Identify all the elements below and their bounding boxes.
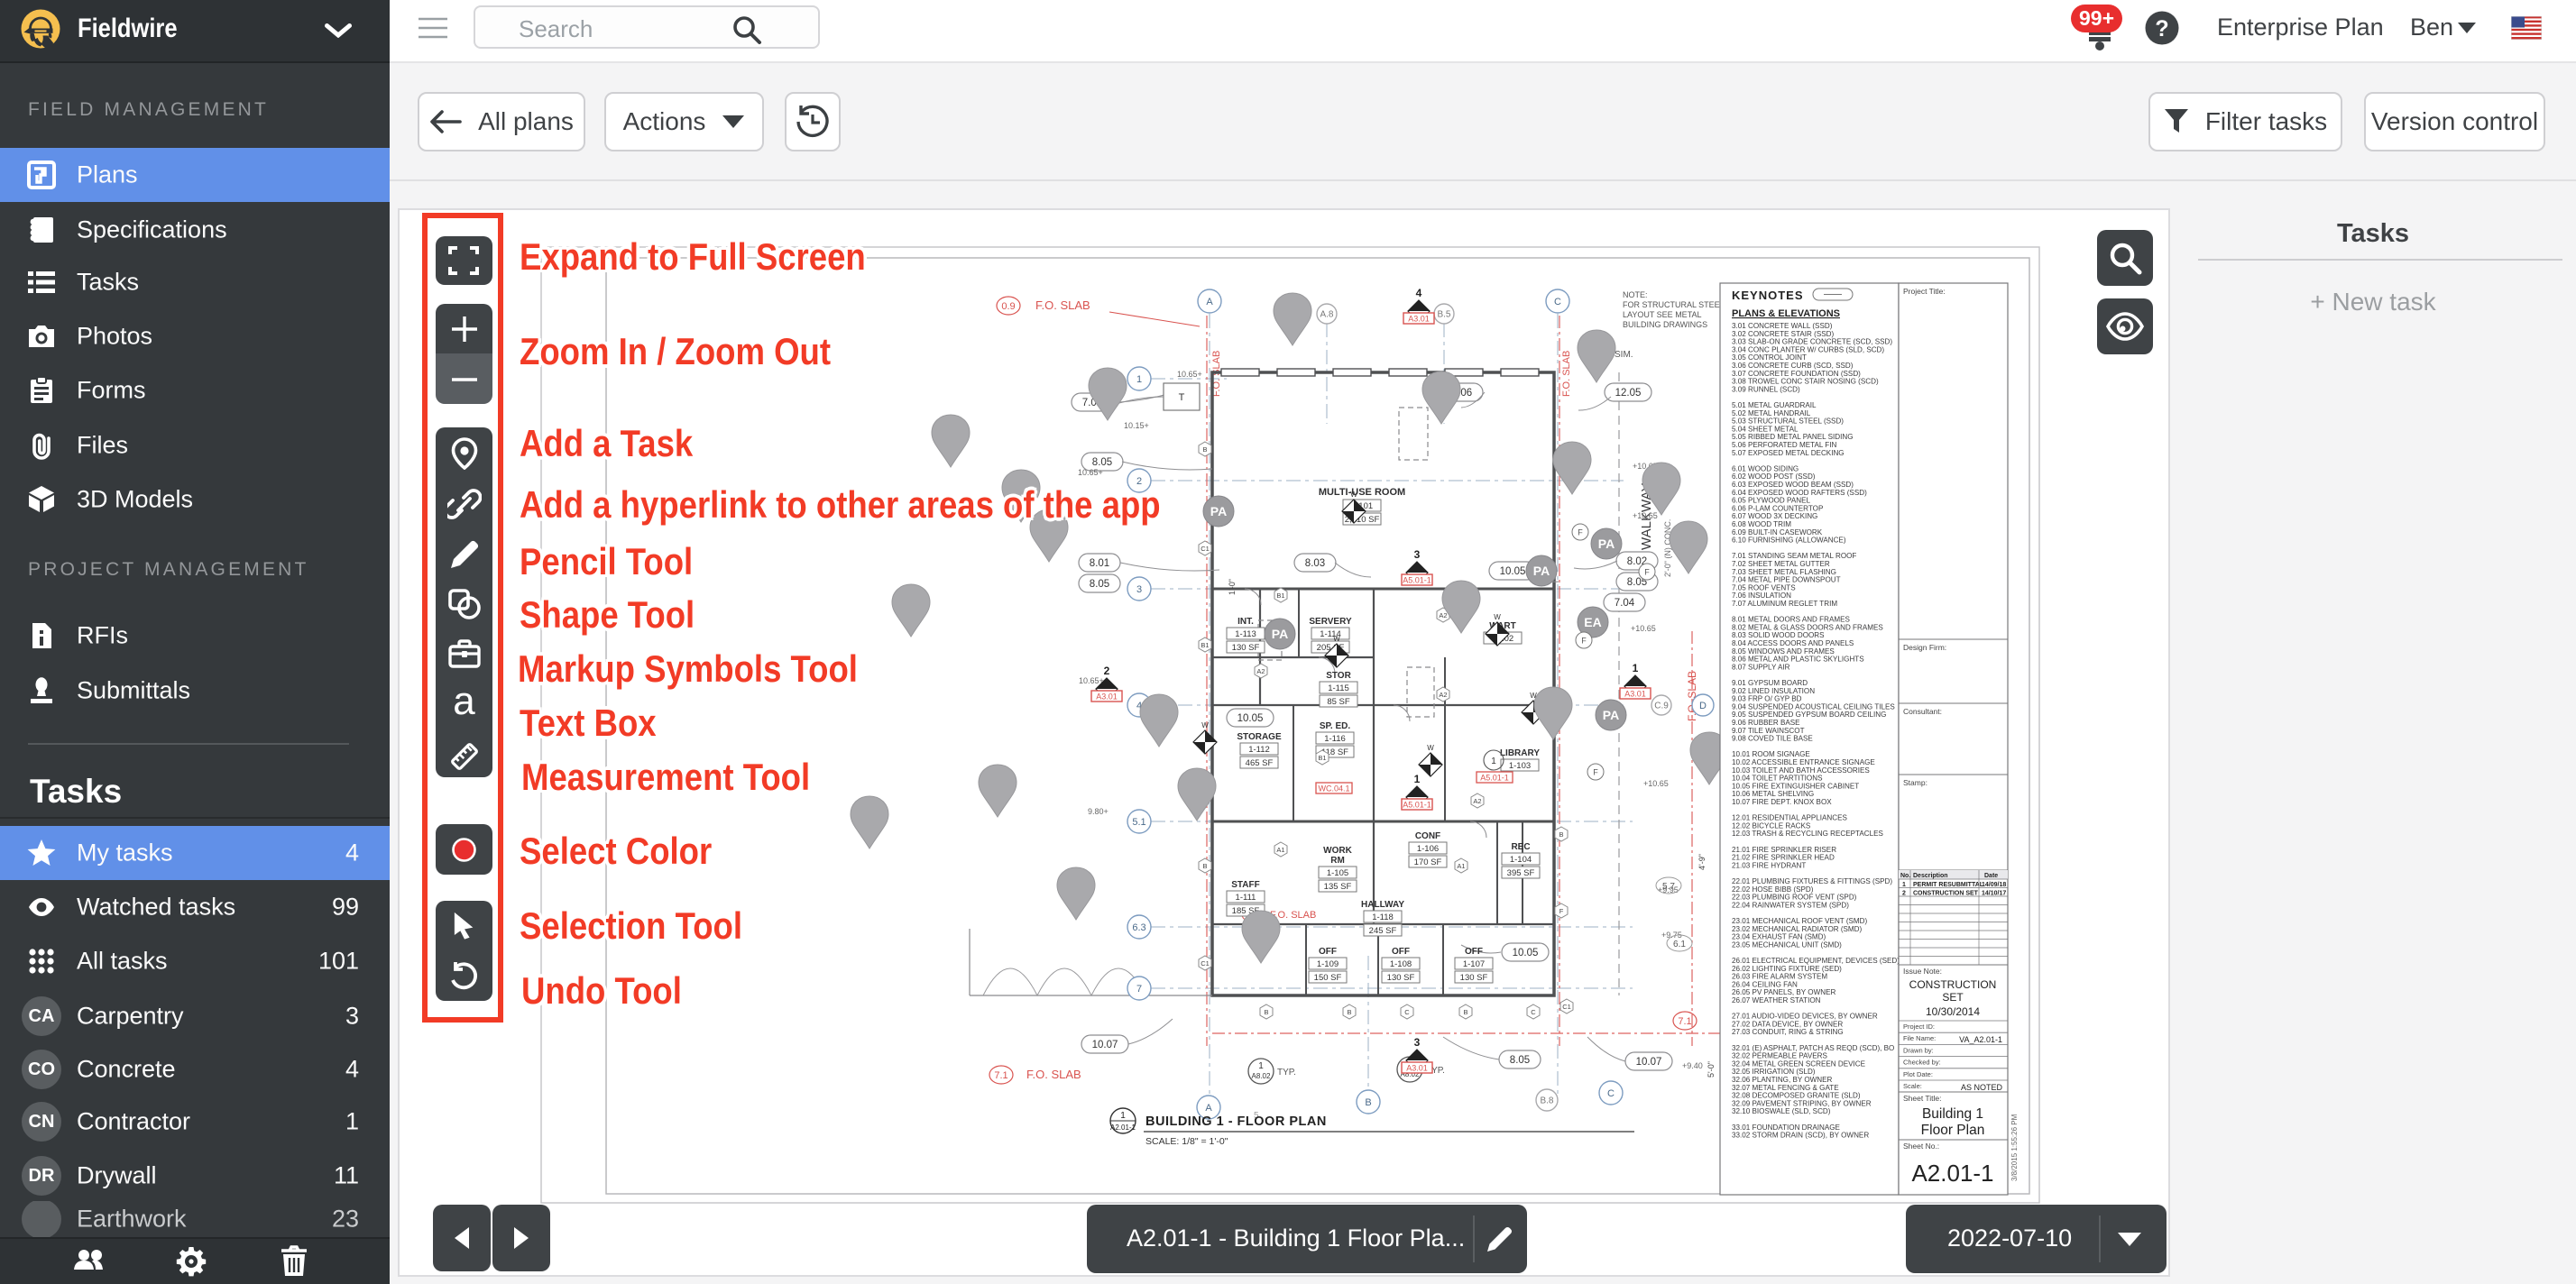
svg-text:RM: RM: [1330, 856, 1345, 866]
svg-text:6.02 WOOD POST (SSD): 6.02 WOOD POST (SSD): [1732, 472, 1816, 481]
svg-text:26.04 CEILING FAN: 26.04 CEILING FAN: [1732, 980, 1798, 988]
svg-text:5'-0": 5'-0": [1707, 1061, 1716, 1078]
svg-text:8.03: 8.03: [1305, 558, 1325, 569]
svg-text:1: 1: [1258, 1061, 1264, 1071]
svg-text:10.02 ACCESSIBLE ENTRANCE SIGN: 10.02 ACCESSIBLE ENTRANCE SIGNAGE: [1732, 758, 1875, 766]
svg-text:6.08 WOOD TRIM: 6.08 WOOD TRIM: [1732, 520, 1791, 528]
svg-text:14/09/18: 14/09/18: [1982, 882, 2006, 888]
svg-text:PERMIT RESUBMITTAL: PERMIT RESUBMITTAL: [1913, 882, 1984, 888]
svg-text:Project ID:: Project ID:: [1903, 1023, 1935, 1031]
svg-text:Building 1: Building 1: [1922, 1106, 1983, 1122]
svg-text:10.07 FIRE DEPT. KNOX BOX: 10.07 FIRE DEPT. KNOX BOX: [1732, 798, 1832, 806]
svg-text:9.02 LINED INSULATION: 9.02 LINED INSULATION: [1732, 687, 1815, 695]
svg-text:A1: A1: [1457, 862, 1465, 870]
svg-text:2: 2: [1902, 891, 1906, 897]
svg-text:33.02 STORM DRAIN (SCD), BY OW: 33.02 STORM DRAIN (SCD), BY OWNER: [1732, 1132, 1869, 1140]
svg-text:23.02 MECHANICAL RADIATOR (SMD: 23.02 MECHANICAL RADIATOR (SMD): [1732, 925, 1863, 933]
svg-text:A3.01: A3.01: [1096, 692, 1118, 702]
svg-text:1-115: 1-115: [1328, 683, 1349, 693]
svg-text:5.06 PERFORATED METAL FIN: 5.06 PERFORATED METAL FIN: [1732, 441, 1836, 449]
svg-text:9.06 RUBBER BASE: 9.06 RUBBER BASE: [1732, 719, 1800, 727]
svg-text:7.1: 7.1: [1678, 1016, 1691, 1027]
svg-text:10.03 TOILET AND BATH ACCESSOR: 10.03 TOILET AND BATH ACCESSORIES: [1732, 766, 1870, 775]
svg-text:5.07 EXPOSED METAL DECKING: 5.07 EXPOSED METAL DECKING: [1732, 449, 1845, 457]
svg-text:3.01 CONCRETE WALL (SSD): 3.01 CONCRETE WALL (SSD): [1732, 322, 1833, 330]
svg-text:1'-0": 1'-0": [1228, 579, 1237, 595]
svg-text:BUILDING DRAWINGS: BUILDING DRAWINGS: [1623, 320, 1707, 329]
svg-text:10.04 TOILET PARTITIONS: 10.04 TOILET PARTITIONS: [1732, 775, 1823, 783]
svg-text:A2: A2: [1439, 691, 1447, 699]
svg-text:A: A: [1206, 297, 1213, 307]
svg-text:+10.65: +10.65: [1643, 779, 1669, 788]
svg-text:32.05 IRRIGATION (SLD): 32.05 IRRIGATION (SLD): [1732, 1068, 1816, 1076]
svg-text:B: B: [1559, 830, 1563, 839]
svg-text:8.01: 8.01: [1090, 558, 1109, 569]
svg-text:A5.01-1: A5.01-1: [1403, 576, 1431, 585]
svg-text:File Name:: File Name:: [1903, 1034, 1936, 1042]
svg-text:21.02 FIRE SPRINKLER HEAD: 21.02 FIRE SPRINKLER HEAD: [1732, 854, 1835, 862]
svg-text:3.07 CONCRETE FOUNDATION (SSD: 3.07 CONCRETE FOUNDATION (SSD): [1732, 370, 1861, 378]
svg-text:10.65+: 10.65+: [1078, 468, 1103, 477]
svg-text:6.09 BUILT-IN CASEWORK: 6.09 BUILT-IN CASEWORK: [1732, 528, 1823, 537]
svg-text:A2: A2: [1439, 611, 1447, 619]
svg-text:6.07 WOOD 3X DECKING: 6.07 WOOD 3X DECKING: [1732, 512, 1817, 520]
svg-text:F.O. SLAB: F.O. SLAB: [1561, 351, 1572, 397]
svg-text:32.09 PAVEMENT STRIPING, BY OW: 32.09 PAVEMENT STRIPING, BY OWNER: [1732, 1099, 1872, 1107]
svg-text:A3.01: A3.01: [1408, 315, 1430, 324]
svg-text:C.9: C.9: [1654, 702, 1669, 711]
svg-text:STORAGE: STORAGE: [1237, 732, 1282, 742]
svg-text:3.03 SLAB-ON GRADE CONCRETE (: 3.03 SLAB-ON GRADE CONCRETE (SCD, SSD): [1732, 338, 1892, 346]
svg-text:8.03 SOLID WOOD DOORS: 8.03 SOLID WOOD DOORS: [1732, 631, 1825, 639]
svg-text:135 SF: 135 SF: [1324, 882, 1352, 892]
svg-text:SCALE: 1/8" = 1'-0": SCALE: 1/8" = 1'-0": [1145, 1136, 1228, 1147]
svg-text:C1: C1: [1562, 1003, 1571, 1011]
svg-text:12.03 TRASH & RECYCLING RECEPT: 12.03 TRASH & RECYCLING RECEPTACLES: [1732, 830, 1884, 838]
svg-text:32.06 PLANTING, BY OWNER: 32.06 PLANTING, BY OWNER: [1732, 1076, 1833, 1084]
svg-text:Project Title:: Project Title:: [1903, 287, 1946, 296]
svg-text:32.02 PERMEABLE PAVERS: 32.02 PERMEABLE PAVERS: [1732, 1052, 1827, 1060]
svg-text:9.07 TILE WAINSCOT: 9.07 TILE WAINSCOT: [1732, 727, 1805, 735]
svg-text:A.8: A.8: [1320, 310, 1333, 320]
svg-text:99+: 99+: [2079, 6, 2114, 30]
svg-text:7.03 SHEET METAL FLASHING: 7.03 SHEET METAL FLASHING: [1732, 568, 1836, 576]
svg-text:1-118: 1-118: [1372, 913, 1394, 922]
svg-text:+9.40: +9.40: [1682, 1061, 1703, 1070]
svg-text:SP. ED.: SP. ED.: [1320, 721, 1350, 731]
svg-text:C1: C1: [1201, 545, 1210, 553]
svg-text:1-106: 1-106: [1417, 844, 1439, 854]
svg-text:9.08 COVED TILE BASE: 9.08 COVED TILE BASE: [1732, 735, 1813, 743]
svg-text:26.02 LIGHTING FIXTURE (SED): 26.02 LIGHTING FIXTURE (SED): [1732, 965, 1842, 973]
svg-text:OFF: OFF: [1392, 947, 1410, 957]
svg-text:23.04 EXHAUST FAN (SMD): 23.04 EXHAUST FAN (SMD): [1732, 933, 1826, 941]
svg-text:8.05: 8.05: [1510, 1055, 1530, 1066]
svg-text:F: F: [1644, 568, 1650, 577]
svg-text:6.10 FURNISHING (ALLOWANCE): 6.10 FURNISHING (ALLOWANCE): [1732, 537, 1846, 545]
svg-text:8.07 SUPPLY AIR: 8.07 SUPPLY AIR: [1732, 663, 1790, 671]
svg-text:B.8: B.8: [1540, 1096, 1553, 1106]
svg-text:Issue Note:: Issue Note:: [1903, 967, 1942, 976]
svg-text:1: 1: [1902, 882, 1906, 888]
svg-text:6.1: 6.1: [1673, 940, 1686, 949]
svg-text:6.06 P-LAM COUNTERTOP: 6.06 P-LAM COUNTERTOP: [1732, 504, 1823, 512]
svg-text:Design Firm:: Design Firm:: [1903, 643, 1946, 652]
svg-text:INT.: INT.: [1237, 617, 1254, 627]
svg-text:10.07: 10.07: [1636, 1057, 1662, 1068]
svg-text:LIBRARY: LIBRARY: [1500, 748, 1540, 758]
svg-text:10.05: 10.05: [1237, 713, 1264, 724]
svg-text:B: B: [1365, 1097, 1371, 1108]
svg-text:32.01 (E) ASPHALT, PATCH AS RE: 32.01 (E) ASPHALT, PATCH AS REQD (SCD), …: [1732, 1044, 1894, 1052]
svg-text:A1: A1: [1276, 846, 1284, 854]
svg-text:27.01 AUDIO-VIDEO DEVICES, BY: 27.01 AUDIO-VIDEO DEVICES, BY OWNER: [1732, 1013, 1878, 1021]
svg-text:3.09 RUNNEL (SCD): 3.09 RUNNEL (SCD): [1732, 385, 1800, 393]
svg-text:?: ?: [2155, 16, 2168, 41]
svg-text:B1: B1: [1201, 641, 1209, 649]
svg-text:1-104: 1-104: [1510, 855, 1532, 865]
svg-text:245 SF: 245 SF: [1369, 926, 1397, 936]
svg-text:5.03 STRUCTURAL STEEL (SSD): 5.03 STRUCTURAL STEEL (SSD): [1732, 417, 1844, 426]
svg-text:REC: REC: [1511, 842, 1530, 852]
svg-text:7.05 ROOF VENTS: 7.05 ROOF VENTS: [1732, 583, 1796, 592]
svg-text:7.04 METAL PIPE DOWNSPOUT: 7.04 METAL PIPE DOWNSPOUT: [1732, 576, 1841, 584]
svg-text:A2: A2: [1256, 667, 1265, 675]
svg-text:C: C: [1607, 1088, 1615, 1099]
svg-text:Sheet Title:: Sheet Title:: [1903, 1094, 1942, 1103]
svg-text:3.06 CONCRETE CURB (SCD, SSD): 3.06 CONCRETE CURB (SCD, SSD): [1732, 362, 1854, 370]
svg-text:Stamp:: Stamp:: [1903, 778, 1927, 787]
svg-text:A5.01-1: A5.01-1: [1403, 801, 1431, 810]
svg-text:10.05: 10.05: [1513, 948, 1539, 958]
svg-text:395 SF: 395 SF: [1507, 868, 1535, 878]
svg-text:10.65+: 10.65+: [1177, 370, 1202, 379]
svg-text:9.04 SUSPENDED ACOUSTICAL CEI: 9.04 SUSPENDED ACOUSTICAL CEILING TILES: [1732, 702, 1895, 711]
svg-text:3.02 CONCRETE STAIR (SSD): 3.02 CONCRETE STAIR (SSD): [1732, 330, 1834, 338]
svg-text:F.O. SLAB: F.O. SLAB: [1026, 1068, 1081, 1081]
svg-text:3/8/2015 1:55:26 PM: 3/8/2015 1:55:26 PM: [2010, 1114, 2019, 1181]
svg-text:3.08 TROWEL CONC STAIR NOSING: 3.08 TROWEL CONC STAIR NOSING (SCD): [1732, 378, 1879, 386]
svg-text:A8.02: A8.02: [1252, 1072, 1271, 1080]
svg-text:32.10 BIOSWALE (SLD, SCD): 32.10 BIOSWALE (SLD, SCD): [1732, 1107, 1831, 1115]
svg-text:8.02 METAL & GLASS DOORS AND: 8.02 METAL & GLASS DOORS AND FRAMES: [1732, 623, 1883, 631]
svg-text:OFF: OFF: [1465, 947, 1483, 957]
svg-text:8.04 ACCESS DOORS AND PANELS: 8.04 ACCESS DOORS AND PANELS: [1732, 639, 1854, 647]
svg-text:PA: PA: [1603, 708, 1619, 722]
svg-text:W: W: [1201, 721, 1209, 729]
svg-text:AS NOTED: AS NOTED: [1961, 1083, 2003, 1092]
svg-text:12.01 RESIDENTIAL APPLIANCES: 12.01 RESIDENTIAL APPLIANCES: [1732, 814, 1848, 822]
svg-text:CONF: CONF: [1415, 831, 1440, 841]
svg-text:B: B: [1202, 445, 1207, 454]
svg-text:1: 1: [1491, 757, 1496, 766]
svg-text:6.03 EXPOSED WOOD BEAM (SSD): 6.03 EXPOSED WOOD BEAM (SSD): [1732, 481, 1854, 489]
svg-text:1: 1: [1414, 773, 1421, 785]
svg-text:OFF: OFF: [1319, 947, 1337, 957]
svg-text:10.07: 10.07: [1092, 1040, 1118, 1050]
svg-text:7.07 ALUMINUM REGLET TRIM: 7.07 ALUMINUM REGLET TRIM: [1732, 600, 1837, 608]
svg-text:F: F: [1559, 907, 1564, 915]
svg-text:10.15+: 10.15+: [1124, 421, 1149, 430]
svg-text:5.02 METAL HANDRAIL: 5.02 METAL HANDRAIL: [1732, 409, 1811, 417]
svg-text:T: T: [1179, 392, 1185, 403]
svg-text:5.7: 5.7: [1662, 882, 1675, 892]
svg-text:4: 4: [1416, 287, 1422, 299]
svg-text:27.02 DATA DEVICE, BY OWNER: 27.02 DATA DEVICE, BY OWNER: [1732, 1020, 1843, 1028]
svg-text:1: 1: [1120, 1111, 1126, 1121]
svg-text:Sheet No.:: Sheet No.:: [1903, 1142, 1939, 1151]
svg-text:26.03 FIRE ALARM SYSTEM: 26.03 FIRE ALARM SYSTEM: [1732, 973, 1827, 981]
svg-text:PA: PA: [1598, 537, 1615, 551]
svg-text:12.02 BICYCLE RACKS: 12.02 BICYCLE RACKS: [1732, 821, 1811, 830]
svg-text:LAYOUT SEE METAL: LAYOUT SEE METAL: [1623, 310, 1702, 319]
svg-text:5.04 SHEET METAL: 5.04 SHEET METAL: [1732, 425, 1799, 433]
svg-text:33.01 FOUNDATION DRAINAGE: 33.01 FOUNDATION DRAINAGE: [1732, 1123, 1841, 1132]
svg-text:32.07 METAL FENCING & GATE: 32.07 METAL FENCING & GATE: [1732, 1084, 1839, 1092]
svg-text:D: D: [1699, 701, 1707, 711]
svg-text:PA: PA: [1272, 627, 1288, 641]
svg-text:5.01 METAL GUARDRAIL: 5.01 METAL GUARDRAIL: [1732, 401, 1817, 409]
svg-text:27.03 CONDUIT, RING & STRING: 27.03 CONDUIT, RING & STRING: [1732, 1028, 1844, 1036]
svg-text:26.01 ELECTRICAL EQUIPMENT, DE: 26.01 ELECTRICAL EQUIPMENT, DEVICES (SED…: [1732, 957, 1900, 965]
svg-text:130 SF: 130 SF: [1460, 973, 1488, 983]
svg-text:B: B: [1347, 1008, 1351, 1016]
svg-text:22.02 HOSE BIBB (SPD): 22.02 HOSE BIBB (SPD): [1732, 885, 1814, 894]
svg-text:10.06 METAL SHELVING: 10.06 METAL SHELVING: [1732, 790, 1814, 798]
svg-text:3: 3: [1414, 548, 1421, 561]
svg-text:8.06 METAL AND PLASTIC SKYLIG: 8.06 METAL AND PLASTIC SKYLIGHTS: [1732, 656, 1864, 664]
svg-text:1-116: 1-116: [1324, 734, 1346, 744]
svg-text:No.: No.: [1900, 873, 1910, 879]
svg-text:1-109: 1-109: [1317, 959, 1339, 969]
svg-text:8.01 METAL DOORS AND FRAMES: 8.01 METAL DOORS AND FRAMES: [1732, 616, 1850, 624]
svg-text:B1: B1: [1318, 754, 1326, 762]
svg-text:F: F: [1593, 768, 1598, 777]
svg-text:1: 1: [1633, 662, 1639, 674]
svg-text:Consultant:: Consultant:: [1903, 707, 1942, 716]
svg-text:F: F: [1581, 637, 1587, 646]
svg-text:21.01 FIRE SPRINKLER RISER: 21.01 FIRE SPRINKLER RISER: [1732, 846, 1836, 854]
svg-text:26.05 PV PANELS, BY OWNER: 26.05 PV PANELS, BY OWNER: [1732, 988, 1835, 996]
svg-text:STAFF: STAFF: [1231, 880, 1259, 890]
svg-text:1-108: 1-108: [1390, 959, 1412, 969]
svg-text:7.06 INSULATION: 7.06 INSULATION: [1732, 592, 1791, 600]
svg-text:6.04 EXPOSED WOOD RAFTERS (SS: 6.04 EXPOSED WOOD RAFTERS (SSD): [1732, 489, 1867, 497]
svg-text:TYP.: TYP.: [1277, 1068, 1296, 1078]
svg-text:Date: Date: [1984, 873, 1998, 879]
svg-text:6.05 PLYWOOD PANEL: 6.05 PLYWOOD PANEL: [1732, 497, 1810, 505]
svg-text:9.01 GYPSUM BOARD: 9.01 GYPSUM BOARD: [1732, 679, 1808, 687]
svg-text:10.65+: 10.65+: [1079, 676, 1104, 685]
svg-text:Description: Description: [1913, 873, 1948, 879]
svg-text:STOR: STOR: [1326, 671, 1351, 681]
svg-text:130 SF: 130 SF: [1387, 973, 1415, 983]
svg-text:F: F: [1578, 528, 1583, 537]
svg-text:9.05 SUSPENDED GYPSUM BOARD C: 9.05 SUSPENDED GYPSUM BOARD CEILING: [1732, 711, 1886, 719]
svg-text:CONSTRUCTION SET: CONSTRUCTION SET: [1913, 891, 1979, 897]
svg-text:1-113: 1-113: [1235, 629, 1256, 639]
svg-text:WORK: WORK: [1323, 846, 1352, 856]
svg-text:6.01 WOOD SIDING: 6.01 WOOD SIDING: [1732, 464, 1799, 472]
svg-text:SERVERY: SERVERY: [1309, 617, 1352, 627]
svg-text:W: W: [1350, 491, 1357, 499]
svg-text:1: 1: [1136, 374, 1142, 385]
svg-text:3: 3: [1136, 584, 1142, 595]
svg-text:26.07 WEATHER STATION: 26.07 WEATHER STATION: [1732, 996, 1821, 1004]
svg-text:Checked by:: Checked by:: [1903, 1059, 1941, 1067]
svg-text:F.O. SLAB: F.O. SLAB: [1035, 298, 1090, 312]
svg-text:W: W: [1427, 744, 1434, 752]
svg-text:A2.01-1: A2.01-1: [1911, 1160, 1993, 1187]
svg-text:WC.04.1: WC.04.1: [1318, 784, 1349, 793]
svg-text:7.01 STANDING SEAM METAL ROOF: 7.01 STANDING SEAM METAL ROOF: [1732, 552, 1856, 560]
svg-text:EA: EA: [1584, 615, 1601, 629]
svg-text:PA: PA: [1533, 564, 1550, 578]
svg-text:1-103: 1-103: [1509, 761, 1531, 771]
svg-text:W: W: [1333, 635, 1340, 643]
svg-text:Plot Date:: Plot Date:: [1903, 1070, 1933, 1078]
svg-text:21.03 FIRE HYDRANT: 21.03 FIRE HYDRANT: [1732, 861, 1806, 869]
svg-text:KEYNOTES: KEYNOTES: [1732, 289, 1804, 302]
svg-text:CONSTRUCTION: CONSTRUCTION: [1909, 978, 1997, 991]
svg-text:BUILDING 1 - FLOOR PLAN: BUILDING 1 - FLOOR PLAN: [1145, 1114, 1327, 1129]
svg-text:B: B: [1202, 862, 1207, 870]
svg-text:22.03 PLUMBING ROOF VENT (SPD): 22.03 PLUMBING ROOF VENT (SPD): [1732, 894, 1857, 902]
svg-text:1-107: 1-107: [1463, 959, 1485, 969]
svg-text:Floor Plan: Floor Plan: [1921, 1123, 1985, 1138]
svg-text:1-105: 1-105: [1327, 868, 1348, 878]
svg-text:SIM.: SIM.: [1615, 350, 1633, 360]
svg-text:B: B: [1463, 1008, 1467, 1016]
svg-text:PLANS & ELEVATIONS: PLANS & ELEVATIONS: [1732, 308, 1840, 319]
svg-text:A3.01: A3.01: [1624, 690, 1646, 699]
svg-text:32.04 METAL GREEN SCREEN DEVIC: 32.04 METAL GREEN SCREEN DEVICE: [1732, 1059, 1866, 1068]
svg-text:3.04 CONC PLANTER W/ CURBS (S: 3.04 CONC PLANTER W/ CURBS (SLD, SCD): [1732, 345, 1884, 353]
svg-text:10.01 ROOM SIGNAGE: 10.01 ROOM SIGNAGE: [1732, 750, 1810, 758]
svg-text:32.08 DECOMPOSED GRANITE (SLD): 32.08 DECOMPOSED GRANITE (SLD): [1732, 1092, 1861, 1100]
svg-text:1-111: 1-111: [1236, 893, 1256, 903]
svg-text:22.01 PLUMBING FIXTURES & FITT: 22.01 PLUMBING FIXTURES & FITTINGS (SPD): [1732, 877, 1892, 885]
svg-text:170 SF: 170 SF: [1414, 858, 1442, 867]
svg-text:4'-9": 4'-9": [1697, 854, 1707, 870]
svg-text:130 SF: 130 SF: [1232, 643, 1260, 653]
svg-text:+10.65: +10.65: [1633, 511, 1658, 520]
svg-text:C: C: [1531, 1008, 1536, 1016]
svg-text:7.1: 7.1: [994, 1070, 1007, 1081]
svg-text:10.05 FIRE EXTINGUISHER CABINE: 10.05 FIRE EXTINGUISHER CABINET: [1732, 782, 1859, 790]
svg-text:5.1: 5.1: [1132, 817, 1145, 828]
svg-text:1-112: 1-112: [1248, 745, 1270, 755]
svg-text:8.05: 8.05: [1090, 579, 1109, 590]
svg-text:22.04 RAINWATER SYSTEM (SPD): 22.04 RAINWATER SYSTEM (SPD): [1732, 901, 1849, 909]
svg-text:9.80+: 9.80+: [1088, 807, 1109, 816]
svg-text:8.05: 8.05: [1092, 457, 1112, 468]
svg-text:C: C: [1404, 1008, 1410, 1016]
svg-text:A: A: [1205, 1103, 1212, 1114]
svg-text:Drawn by:: Drawn by:: [1903, 1046, 1934, 1054]
svg-text:0.9: 0.9: [1001, 301, 1015, 312]
svg-text:B1: B1: [1276, 592, 1284, 600]
svg-text:MULTI-USE ROOM: MULTI-USE ROOM: [1319, 487, 1405, 498]
svg-text:6.3: 6.3: [1132, 922, 1145, 933]
svg-text:+10.65: +10.65: [1631, 624, 1656, 633]
svg-text:2'-0" (N) CONC.: 2'-0" (N) CONC.: [1663, 519, 1672, 577]
svg-text:23.01 MECHANICAL ROOF VENT (SM: 23.01 MECHANICAL ROOF VENT (SMD): [1732, 917, 1868, 925]
svg-text:9.03 FRP O/ GYP BD: 9.03 FRP O/ GYP BD: [1732, 695, 1802, 703]
svg-text:SET: SET: [1942, 991, 1964, 1004]
svg-text:PA: PA: [1210, 504, 1227, 518]
svg-text:HALLWAY: HALLWAY: [1361, 900, 1404, 910]
svg-text:8.05 WINDOWS AND FRAMES: 8.05 WINDOWS AND FRAMES: [1732, 647, 1835, 656]
svg-text:A2: A2: [1473, 797, 1481, 805]
svg-text:B: B: [1264, 1008, 1268, 1016]
svg-text:14/10/17: 14/10/17: [1982, 891, 2006, 897]
svg-text:A5.01-1: A5.01-1: [1480, 774, 1509, 783]
svg-text:7: 7: [1136, 984, 1142, 995]
svg-text:3.05 CONTROL JOINT: 3.05 CONTROL JOINT: [1732, 353, 1807, 362]
svg-text:FOR STRUCTURAL STEEL: FOR STRUCTURAL STEEL: [1623, 300, 1725, 309]
svg-text:23.05 MECHANICAL UNIT (SMD): 23.05 MECHANICAL UNIT (SMD): [1732, 940, 1842, 949]
svg-text:12.05: 12.05: [1615, 388, 1642, 399]
svg-text:5.05 RIBBED METAL PANEL SIDIN: 5.05 RIBBED METAL PANEL SIDING: [1732, 433, 1854, 441]
svg-text:465 SF: 465 SF: [1246, 758, 1274, 768]
svg-text:Scale:: Scale:: [1903, 1082, 1922, 1090]
svg-text:10/30/2014: 10/30/2014: [1926, 1005, 1980, 1018]
svg-text:150 SF: 150 SF: [1314, 973, 1342, 983]
svg-text:A3.01: A3.01: [1406, 1064, 1428, 1073]
svg-text:W: W: [1494, 613, 1501, 621]
svg-text:C1: C1: [1201, 959, 1210, 968]
svg-text:B.5: B.5: [1437, 310, 1450, 320]
svg-text:3: 3: [1414, 1036, 1421, 1049]
svg-text:2: 2: [1104, 665, 1110, 677]
svg-text:7.02 SHEET METAL GUTTER: 7.02 SHEET METAL GUTTER: [1732, 560, 1830, 568]
svg-text:10.05: 10.05: [1500, 566, 1526, 577]
svg-text:85 SF: 85 SF: [1327, 697, 1350, 707]
svg-text:C: C: [1554, 297, 1561, 307]
svg-text:NOTE:: NOTE:: [1623, 290, 1648, 299]
svg-text:7.04: 7.04: [1615, 598, 1635, 609]
svg-text:A2.01-1: A2.01-1: [1110, 1123, 1136, 1132]
svg-text:VA_A2.01-1: VA_A2.01-1: [1959, 1035, 2002, 1044]
